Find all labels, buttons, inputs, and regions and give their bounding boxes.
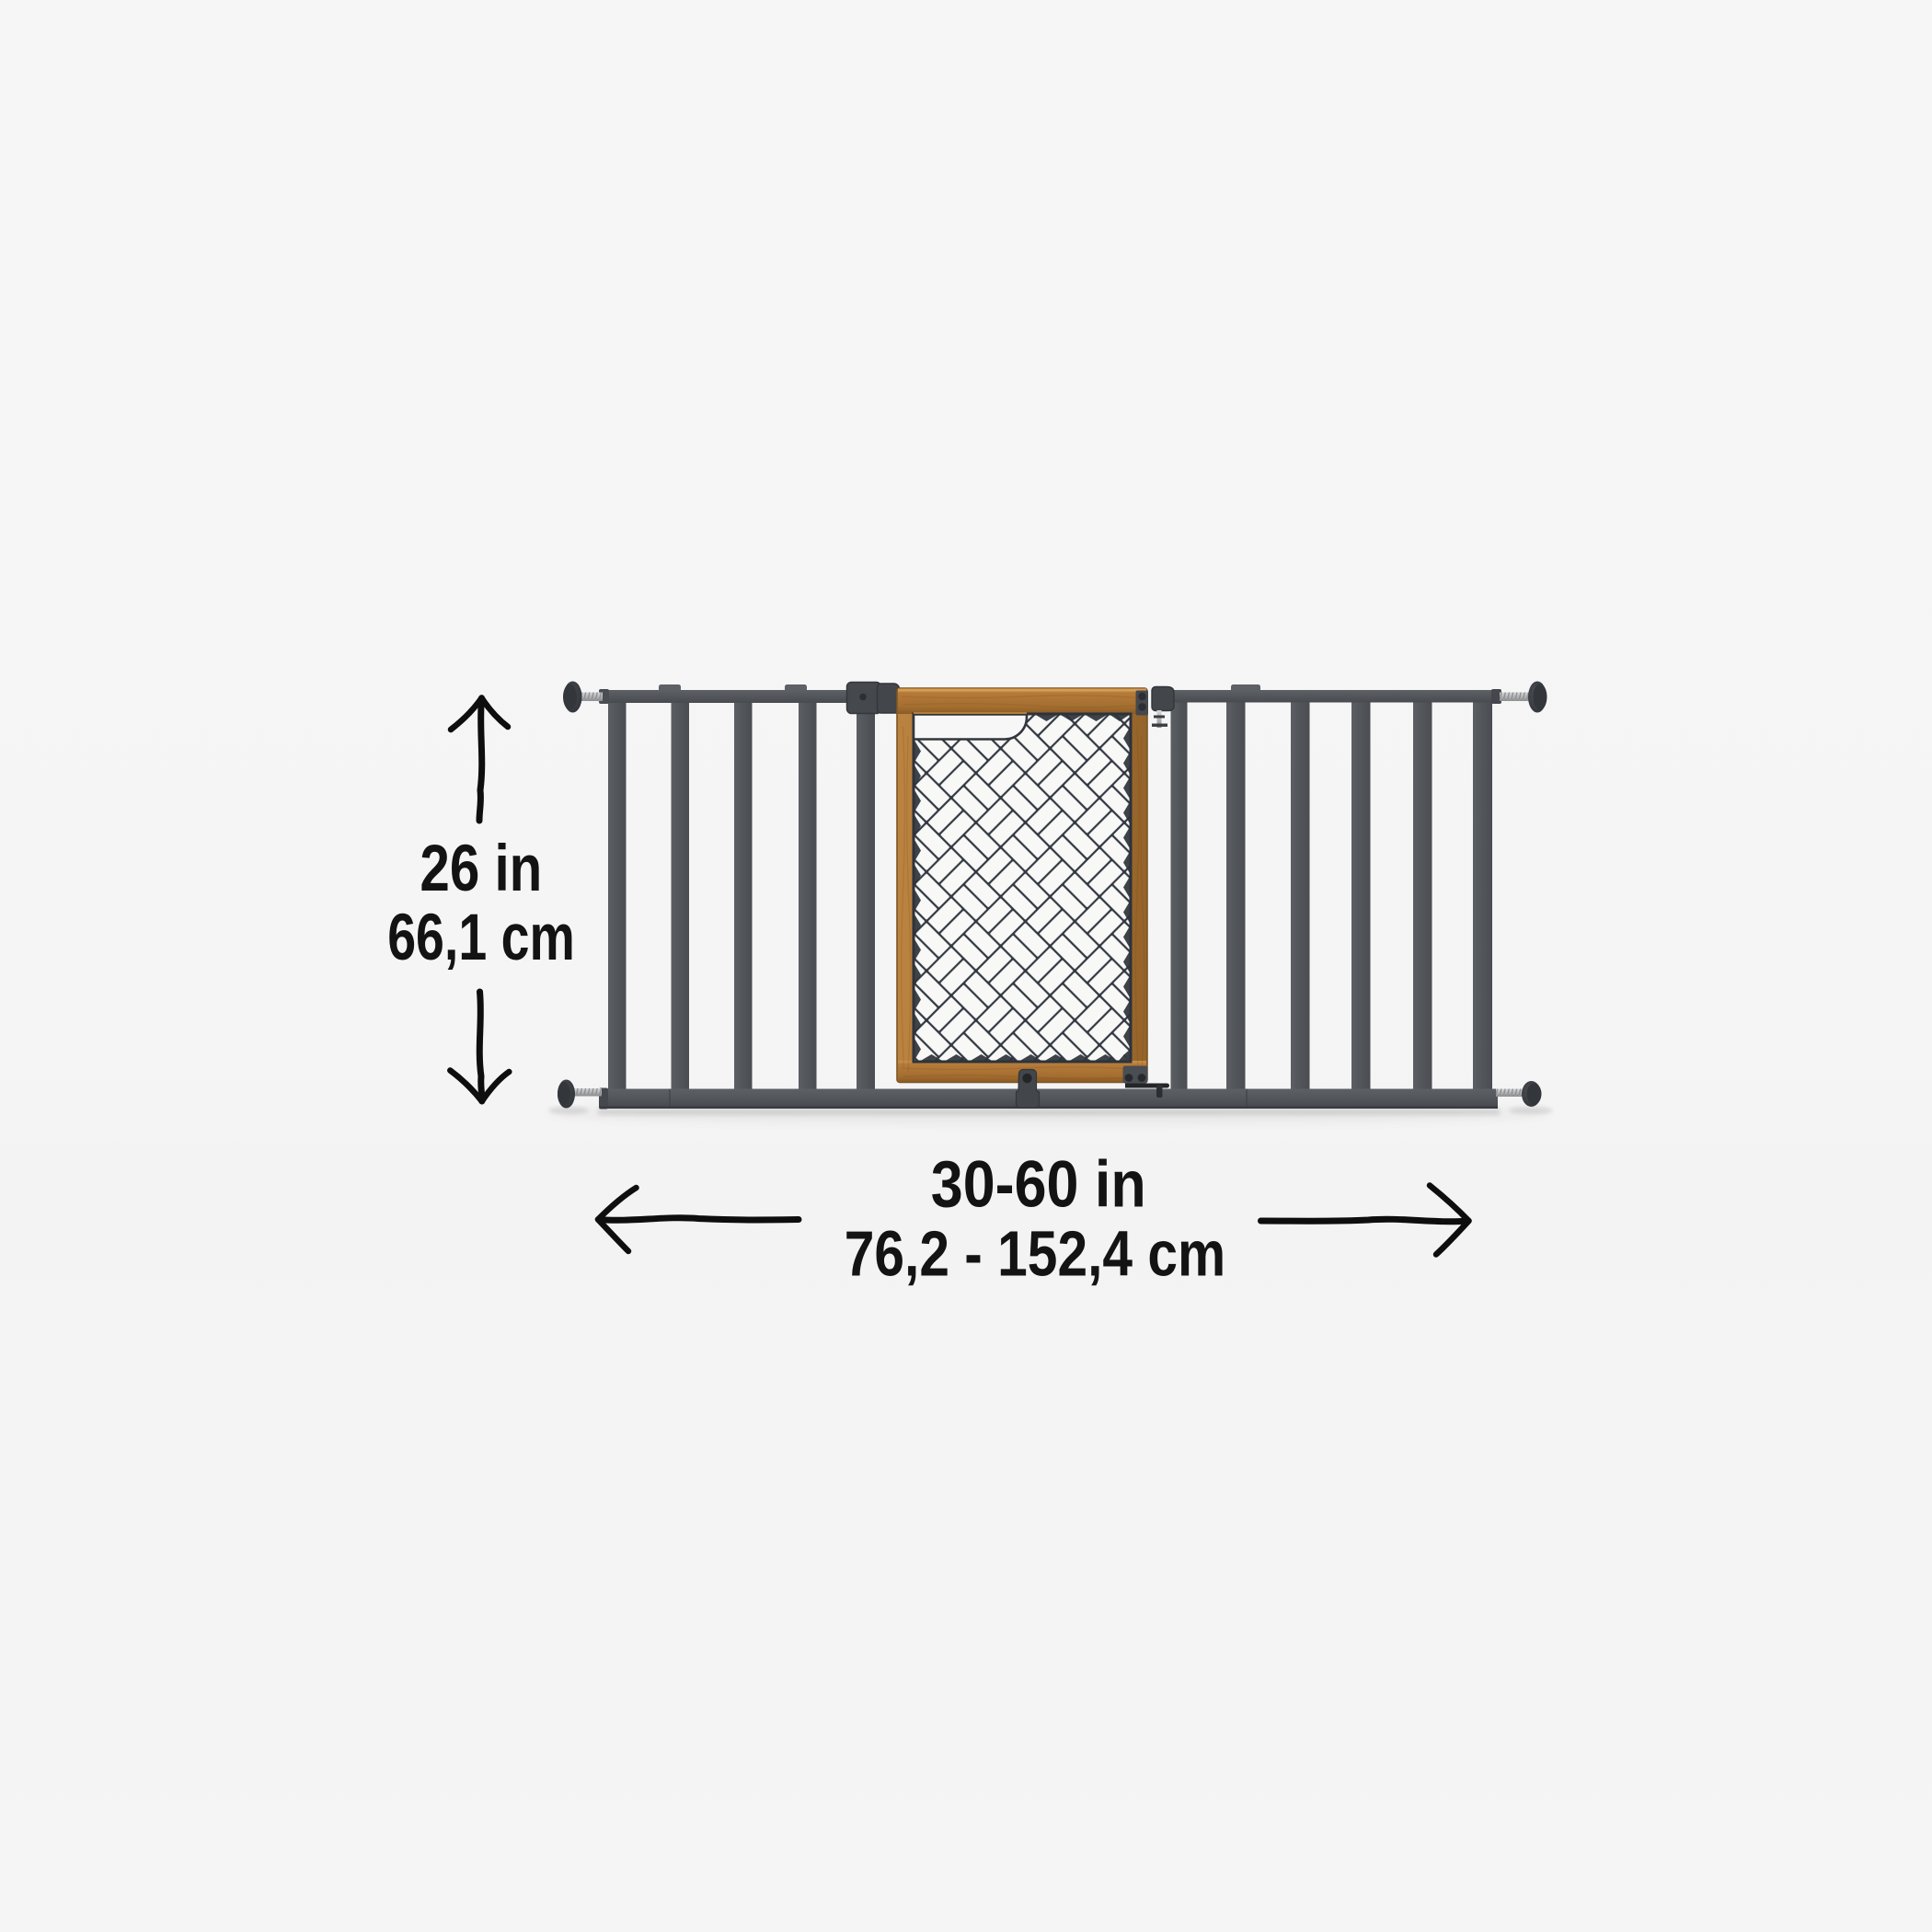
svg-text:26 in: 26 in (420, 832, 542, 905)
svg-text:30-60 in: 30-60 in (931, 1148, 1146, 1221)
svg-text:66,1 cm: 66,1 cm (387, 900, 575, 973)
svg-text:76,2 - 152,4 cm: 76,2 - 152,4 cm (845, 1218, 1226, 1290)
